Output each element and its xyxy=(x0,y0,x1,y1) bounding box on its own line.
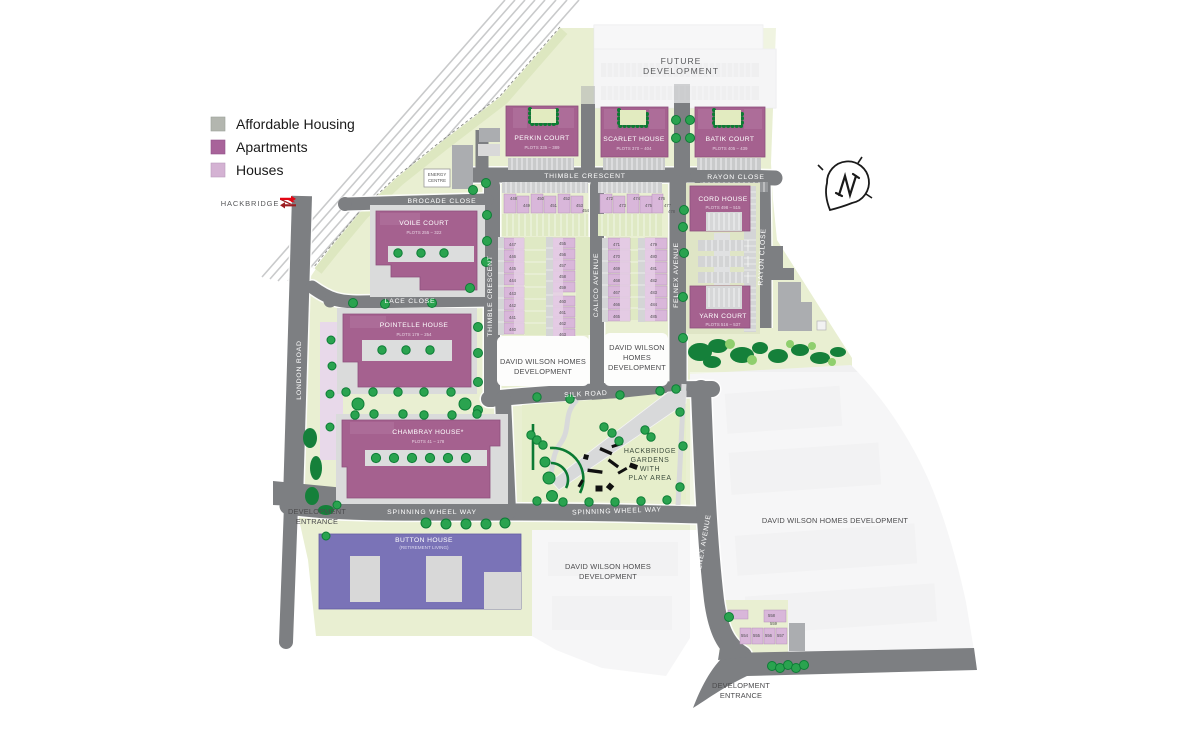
svg-text:454: 454 xyxy=(582,208,590,213)
svg-text:458: 458 xyxy=(559,274,567,279)
svg-text:LONDON ROAD: LONDON ROAD xyxy=(296,340,303,399)
svg-text:SPINNING WHEEL WAY: SPINNING WHEEL WAY xyxy=(387,509,477,516)
svg-text:PLOTS 335 – 389: PLOTS 335 – 389 xyxy=(524,145,560,150)
svg-text:SCARLET HOUSE: SCARLET HOUSE xyxy=(603,136,665,143)
svg-text:BATIK COURT: BATIK COURT xyxy=(706,136,755,143)
svg-text:PLOTS 498 – 515: PLOTS 498 – 515 xyxy=(705,205,741,210)
svg-text:PLOTS 370 – 404: PLOTS 370 – 404 xyxy=(616,146,652,151)
svg-text:CORD HOUSE: CORD HOUSE xyxy=(698,196,747,203)
svg-text:466: 466 xyxy=(613,302,621,307)
svg-text:DAVID WILSON HOMES: DAVID WILSON HOMES xyxy=(500,357,586,366)
svg-text:DEVELOPMENT: DEVELOPMENT xyxy=(643,66,719,76)
svg-text:473: 473 xyxy=(619,203,627,208)
svg-text:452: 452 xyxy=(563,196,571,201)
svg-text:465: 465 xyxy=(613,314,621,319)
svg-text:DEVELOPMENT: DEVELOPMENT xyxy=(608,363,666,372)
svg-text:Apartments: Apartments xyxy=(236,139,308,155)
svg-text:PLOTS 179 – 254: PLOTS 179 – 254 xyxy=(396,332,432,337)
svg-text:HACKBRIDGE: HACKBRIDGE xyxy=(624,448,676,455)
svg-text:PLAY AREA: PLAY AREA xyxy=(628,475,671,482)
svg-text:BROCADE CLOSE: BROCADE CLOSE xyxy=(408,198,477,205)
svg-text:DAVID WILSON: DAVID WILSON xyxy=(609,343,665,352)
svg-text:445: 445 xyxy=(509,266,517,271)
svg-text:PLOTS 41 – 178: PLOTS 41 – 178 xyxy=(412,439,445,444)
svg-text:555: 555 xyxy=(753,633,761,638)
svg-text:444: 444 xyxy=(509,278,517,283)
svg-text:447: 447 xyxy=(509,242,517,247)
svg-text:451: 451 xyxy=(550,203,558,208)
svg-text:WITH: WITH xyxy=(640,466,660,473)
svg-text:483: 483 xyxy=(650,290,658,295)
svg-text:Houses: Houses xyxy=(236,162,283,178)
svg-text:DAVID WILSON HOMES: DAVID WILSON HOMES xyxy=(565,562,651,571)
svg-text:FELNEX AVENUE: FELNEX AVENUE xyxy=(673,242,680,308)
svg-text:477: 477 xyxy=(664,203,672,208)
svg-text:FUTURE: FUTURE xyxy=(661,56,702,66)
svg-text:467: 467 xyxy=(613,290,621,295)
svg-text:ENTRANCE: ENTRANCE xyxy=(720,691,762,700)
svg-text:455: 455 xyxy=(559,241,567,246)
svg-text:474: 474 xyxy=(633,196,641,201)
svg-text:481: 481 xyxy=(650,266,658,271)
svg-text:478: 478 xyxy=(668,209,676,214)
svg-text:557: 557 xyxy=(777,633,785,638)
svg-text:YARN COURT: YARN COURT xyxy=(699,313,747,320)
svg-text:PLOTS 405 – 439: PLOTS 405 – 439 xyxy=(712,146,748,151)
svg-text:HACKBRIDGE: HACKBRIDGE xyxy=(221,199,280,208)
svg-text:462: 462 xyxy=(559,321,567,326)
svg-text:476: 476 xyxy=(658,196,666,201)
svg-text:RAYON CLOSE: RAYON CLOSE xyxy=(707,174,764,181)
svg-text:443: 443 xyxy=(509,291,517,296)
svg-text:DEVELOPMENT: DEVELOPMENT xyxy=(712,681,770,690)
svg-text:457: 457 xyxy=(559,263,567,268)
svg-text:CALICO AVENUE: CALICO AVENUE xyxy=(593,253,600,318)
svg-text:480: 480 xyxy=(650,254,658,259)
svg-text:448: 448 xyxy=(510,196,518,201)
svg-text:440: 440 xyxy=(509,327,517,332)
svg-text:POINTELLE HOUSE: POINTELLE HOUSE xyxy=(380,322,449,329)
svg-text:479: 479 xyxy=(650,242,658,247)
svg-text:459: 459 xyxy=(559,285,567,290)
svg-text:485: 485 xyxy=(650,314,658,319)
svg-text:ENERGY: ENERGY xyxy=(428,172,447,177)
svg-text:VOILE COURT: VOILE COURT xyxy=(399,220,449,227)
svg-text:449: 449 xyxy=(523,203,531,208)
svg-text:THIMBLE CRESCENT: THIMBLE CRESCENT xyxy=(544,173,626,180)
svg-text:DAVID WILSON HOMES DEVELOPMENT: DAVID WILSON HOMES DEVELOPMENT xyxy=(762,516,909,525)
svg-text:484: 484 xyxy=(650,302,658,307)
svg-text:468: 468 xyxy=(613,278,621,283)
svg-text:LACE CLOSE: LACE CLOSE xyxy=(385,298,436,305)
svg-text:PLOTS 255 – 322: PLOTS 255 – 322 xyxy=(406,230,442,235)
svg-text:CENTRE: CENTRE xyxy=(428,178,446,183)
svg-text:HOMES: HOMES xyxy=(623,353,651,362)
svg-text:456: 456 xyxy=(559,252,567,257)
svg-text:558: 558 xyxy=(768,613,776,618)
svg-text:THIMBLE CRESCENT: THIMBLE CRESCENT xyxy=(487,255,494,337)
svg-text:471: 471 xyxy=(613,242,621,247)
svg-text:(RETIREMENT LIVING): (RETIREMENT LIVING) xyxy=(399,545,449,550)
svg-text:470: 470 xyxy=(613,254,621,259)
svg-text:441: 441 xyxy=(509,315,517,320)
svg-text:461: 461 xyxy=(559,310,567,315)
svg-text:460: 460 xyxy=(559,299,567,304)
svg-text:472: 472 xyxy=(606,196,614,201)
svg-text:475: 475 xyxy=(645,203,653,208)
svg-text:559: 559 xyxy=(770,621,778,626)
svg-text:PLOTS 516 – 537: PLOTS 516 – 537 xyxy=(705,322,741,327)
svg-text:ENTRANCE: ENTRANCE xyxy=(296,517,338,526)
svg-text:469: 469 xyxy=(613,266,621,271)
svg-text:DEVELOPMENT: DEVELOPMENT xyxy=(579,572,637,581)
svg-text:DEVELOPMENT: DEVELOPMENT xyxy=(514,367,572,376)
svg-text:482: 482 xyxy=(650,278,658,283)
svg-text:GARDENS: GARDENS xyxy=(631,457,670,464)
svg-text:442: 442 xyxy=(509,303,517,308)
svg-text:556: 556 xyxy=(765,633,773,638)
svg-text:CHAMBRAY HOUSE*: CHAMBRAY HOUSE* xyxy=(392,429,464,436)
svg-text:450: 450 xyxy=(537,196,545,201)
svg-text:PERKIN COURT: PERKIN COURT xyxy=(514,135,569,142)
svg-text:446: 446 xyxy=(509,254,517,259)
svg-text:DEVELOPMENT: DEVELOPMENT xyxy=(288,507,346,516)
svg-text:BUTTON HOUSE: BUTTON HOUSE xyxy=(395,537,453,544)
svg-text:554: 554 xyxy=(741,633,749,638)
svg-text:Affordable Housing: Affordable Housing xyxy=(236,116,355,132)
